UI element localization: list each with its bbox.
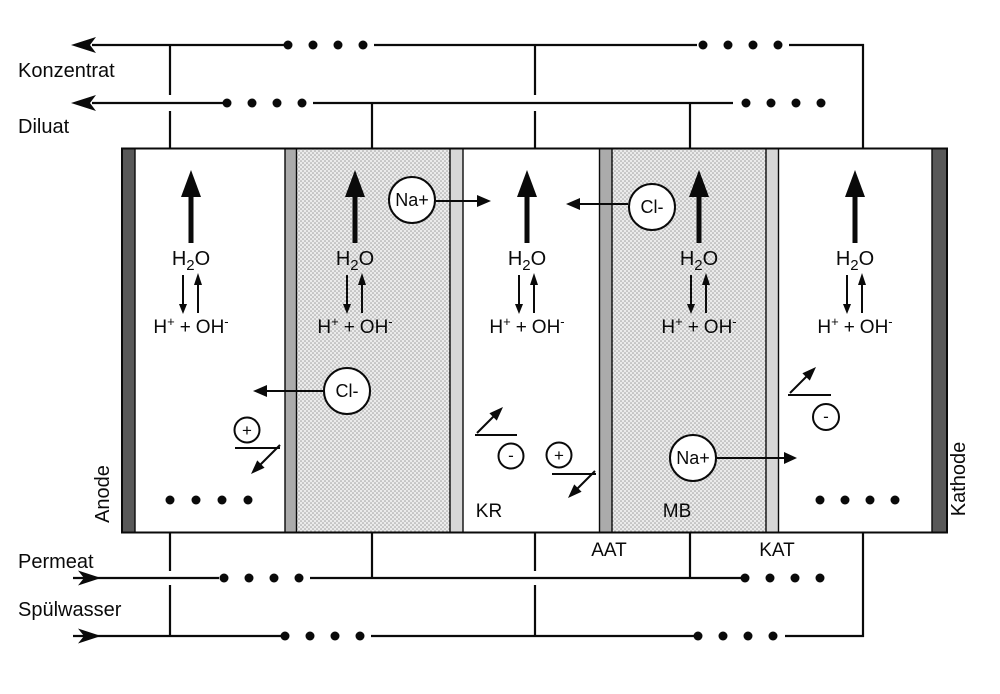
kr-chamber-label: KR — [476, 501, 502, 522]
h2o-formula: H2O — [172, 248, 210, 274]
edi-stack-diagram: H2O H++OH- H2O H++OH- H2O H++OH- H2O H++… — [0, 0, 1000, 694]
membrane-aat-1 — [285, 149, 297, 533]
h2o-formula: H2O — [508, 248, 546, 274]
na-ion-label: Na+ — [676, 448, 710, 468]
anode-electrode-bar — [122, 149, 135, 533]
cl-ion-label: Cl- — [336, 381, 359, 401]
membrane-kat-1 — [450, 149, 463, 533]
water-splitting-chamber-1: H2O H++OH- — [153, 170, 228, 338]
minus-charge-chamber-3: - — [475, 403, 524, 468]
left-arrow-icon — [253, 385, 267, 397]
membrane-aat-2 — [600, 149, 613, 533]
plus-label: + — [242, 421, 252, 440]
cl-ion-label: Cl- — [641, 197, 664, 217]
kathode-electrode-bar — [932, 149, 947, 533]
diluat-flow-line — [71, 95, 826, 149]
stack-outline — [122, 149, 947, 533]
up-arrow-icon — [845, 170, 865, 197]
minus-label: - — [508, 446, 514, 465]
permeat-label: Permeat — [18, 551, 94, 573]
membrane-kat-2 — [766, 149, 779, 533]
plus-label: + — [554, 446, 564, 465]
right-arrow-icon — [477, 195, 491, 207]
diagram-svg: H2O H++OH- H2O H++OH- H2O H++OH- H2O H++… — [0, 0, 1000, 694]
kat-membrane-label: KAT — [759, 540, 795, 561]
water-splitting-chamber-5: H2O H++OH- — [817, 170, 892, 338]
up-arrow-icon — [517, 170, 537, 197]
minus-label: - — [823, 407, 829, 426]
right-arrow-icon — [784, 452, 797, 464]
chamber-5-dots — [816, 496, 900, 505]
left-arrow-icon — [566, 198, 580, 210]
membrane-stack — [122, 149, 947, 533]
na-ion-label: Na+ — [395, 190, 429, 210]
diluat-label: Diluat — [18, 116, 70, 138]
dissociation-formula: H++OH- — [817, 314, 892, 338]
konzentrat-label: Konzentrat — [18, 60, 115, 82]
konzentrat-flow-line — [71, 37, 864, 149]
plus-charge-chamber-1: + — [235, 418, 281, 478]
dissociation-formula: H++OH- — [489, 314, 564, 338]
chamber-1-dots — [166, 496, 253, 505]
spuelwasser-label: Spülwasser — [18, 599, 122, 621]
aat-membrane-label: AAT — [591, 540, 627, 561]
plus-charge-chamber-3: + — [547, 443, 597, 502]
mb-chamber-label: MB — [663, 501, 692, 522]
minus-charge-chamber-5: - — [788, 363, 839, 430]
dissociation-formula: H++OH- — [153, 314, 228, 338]
h2o-formula: H2O — [836, 248, 874, 274]
up-arrow-icon — [181, 170, 201, 197]
kathode-label: Kathode — [948, 442, 970, 517]
anode-label: Anode — [92, 465, 114, 523]
water-splitting-chamber-3: H2O H++OH- — [489, 170, 564, 338]
spuelwasser-flow-line — [73, 532, 864, 644]
permeat-flow-line — [73, 532, 825, 586]
